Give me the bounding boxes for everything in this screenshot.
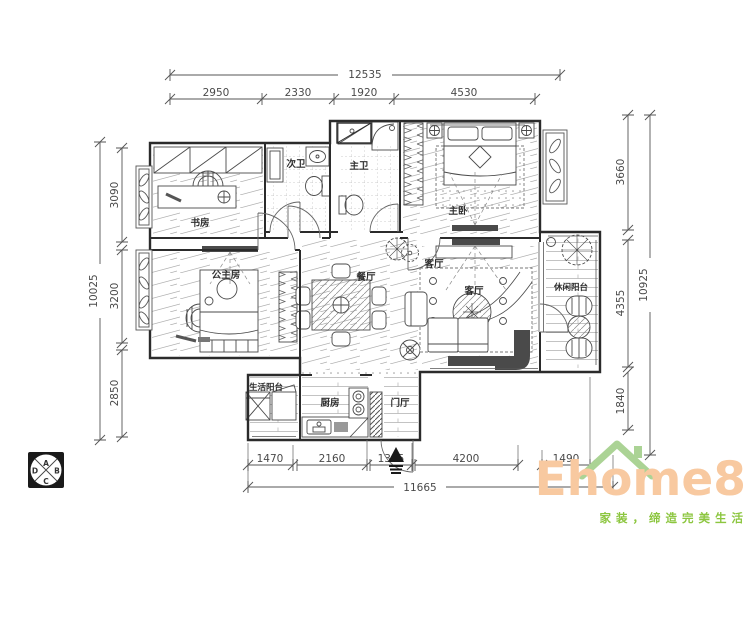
dim-top-total: 12535: [348, 69, 381, 81]
logo-tagline-text: 家装，缔造完美生活: [600, 510, 749, 526]
floor-plan-canvas: 12535 2950 2330 1920 4530 10025 3090 320…: [0, 0, 756, 630]
entrance-arrow-icon: [388, 447, 404, 473]
dim-top-seg2: 2330: [285, 87, 312, 99]
logo: Ehome8 家装，缔造完美生活: [500, 448, 752, 540]
label-master-bedroom: 主卧: [448, 205, 468, 217]
compass-letter-b: B: [54, 467, 60, 476]
compass-letter-d: D: [32, 467, 38, 476]
plant-icon: [386, 238, 408, 260]
label-foyer: 门厅: [390, 397, 410, 409]
label-study: 书房: [190, 217, 209, 229]
compass-icon: A B C D: [28, 452, 64, 488]
label-dining-room: 餐厅: [355, 271, 376, 283]
dim-left-seg1: 3090: [109, 182, 121, 209]
dimension-chain-top: 12535 2950 2330 1920 4530: [165, 66, 565, 105]
dim-left-total: 10025: [88, 274, 100, 307]
dim-bottom-total: 11665: [403, 482, 436, 494]
living-tv: [452, 239, 500, 245]
dim-bottom-seg2: 2160: [319, 453, 346, 465]
master-tv: [452, 225, 498, 231]
study-wardrobe: [154, 147, 262, 173]
compass-letter-a: A: [43, 459, 49, 468]
dim-top-seg3: 1920: [351, 87, 378, 99]
dimension-chain-right: 10925 3660 4355 1840: [615, 110, 656, 460]
label-living-room-1: 客厅: [423, 258, 444, 270]
dim-left-seg3: 2850: [109, 380, 121, 407]
dim-right-seg1: 3660: [615, 159, 627, 186]
foyer-partition: [370, 392, 382, 437]
dimension-chain-left: 10025 3090 3200 2850: [88, 137, 128, 445]
dim-bottom-seg4: 4200: [453, 453, 480, 465]
dim-right-seg3: 1840: [615, 388, 627, 415]
label-guest-bath: 次卫: [286, 158, 306, 170]
logo-brand-text: Ehome8: [535, 456, 746, 503]
label-living-room-2: 客厅: [463, 285, 484, 297]
dim-top-seg4: 4530: [451, 87, 478, 99]
dim-right-total: 10925: [638, 268, 650, 301]
label-utility-balcony: 生活阳台: [249, 382, 284, 393]
dim-left-seg2: 3200: [109, 283, 121, 310]
label-master-bath: 主卫: [349, 160, 369, 172]
dim-top-seg1: 2950: [203, 87, 230, 99]
label-princess-room: 公主房: [212, 269, 241, 281]
label-leisure-balcony: 休闲阳台: [553, 282, 589, 293]
compass-letter-c: C: [43, 477, 49, 486]
dim-right-seg2: 4355: [615, 290, 627, 317]
dim-bottom-seg1: 1470: [257, 453, 284, 465]
label-kitchen: 厨房: [320, 397, 339, 409]
